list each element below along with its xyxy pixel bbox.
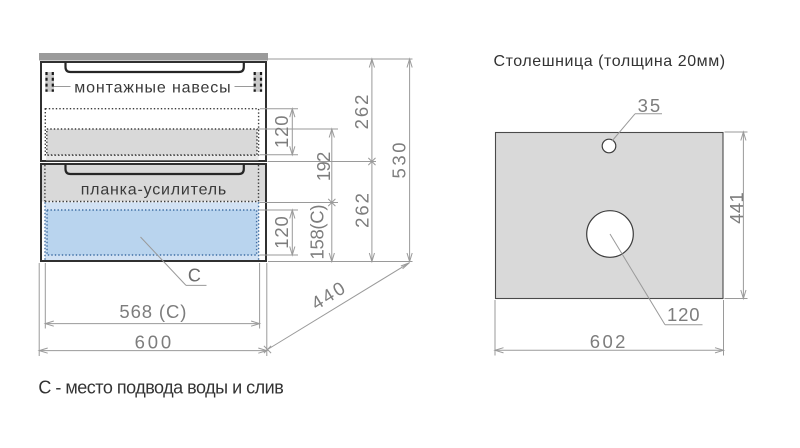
svg-text:568 (C): 568 (C) (119, 301, 186, 322)
svg-text:600: 600 (135, 332, 172, 353)
svg-text:120: 120 (271, 115, 292, 148)
svg-text:120: 120 (667, 304, 700, 325)
svg-text:441: 441 (726, 192, 747, 224)
svg-text:530: 530 (389, 143, 410, 179)
svg-text:158(C): 158(C) (307, 205, 328, 260)
svg-text:35: 35 (638, 95, 661, 116)
svg-text:120: 120 (271, 216, 292, 249)
svg-text:602: 602 (590, 331, 626, 352)
svg-text:262: 262 (352, 193, 373, 228)
svg-text:планка-усилитель: планка-усилитель (81, 182, 227, 199)
svg-text:262: 262 (351, 95, 372, 130)
svg-text:Столешница (толщина 20мм): Столешница (толщина 20мм) (494, 53, 726, 70)
svg-text:монтажные навесы: монтажные навесы (74, 79, 231, 96)
svg-text:C - место подвода воды и слив: C - место подвода воды и слив (38, 377, 283, 397)
svg-text:440: 440 (307, 277, 348, 313)
svg-text:192: 192 (313, 152, 334, 182)
svg-text:C: C (188, 266, 201, 286)
